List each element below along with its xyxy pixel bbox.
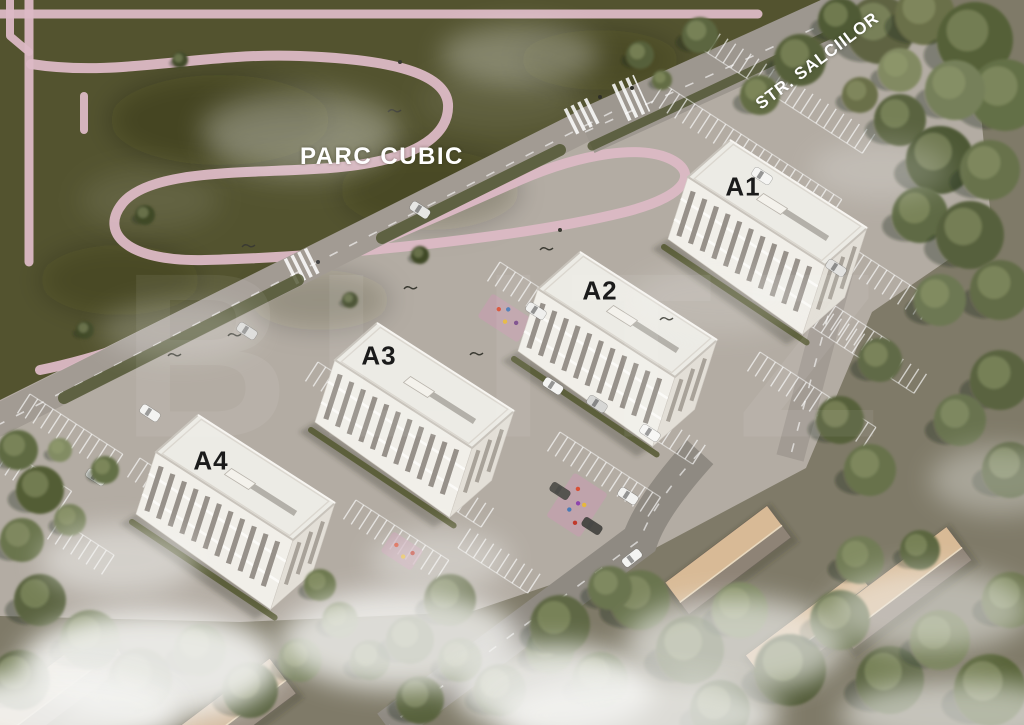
fog-cloud <box>440 25 600 85</box>
site-plan-render: BLITZ PARC CUBIC STR. SALCIILOR A1 A2 A3… <box>0 0 1024 725</box>
fog-cloud <box>200 90 400 170</box>
site-render-canvas <box>0 0 1024 725</box>
fog-cloud <box>830 568 1024 652</box>
tree <box>0 518 44 562</box>
fog-cloud <box>100 300 260 360</box>
fog-cloud <box>630 265 810 335</box>
person <box>598 95 602 99</box>
person <box>630 86 634 90</box>
fog-cloud <box>370 530 510 590</box>
fog-cloud <box>810 140 950 200</box>
person <box>558 228 562 232</box>
person <box>398 60 402 64</box>
person <box>316 260 320 264</box>
fog-cloud <box>40 525 200 595</box>
